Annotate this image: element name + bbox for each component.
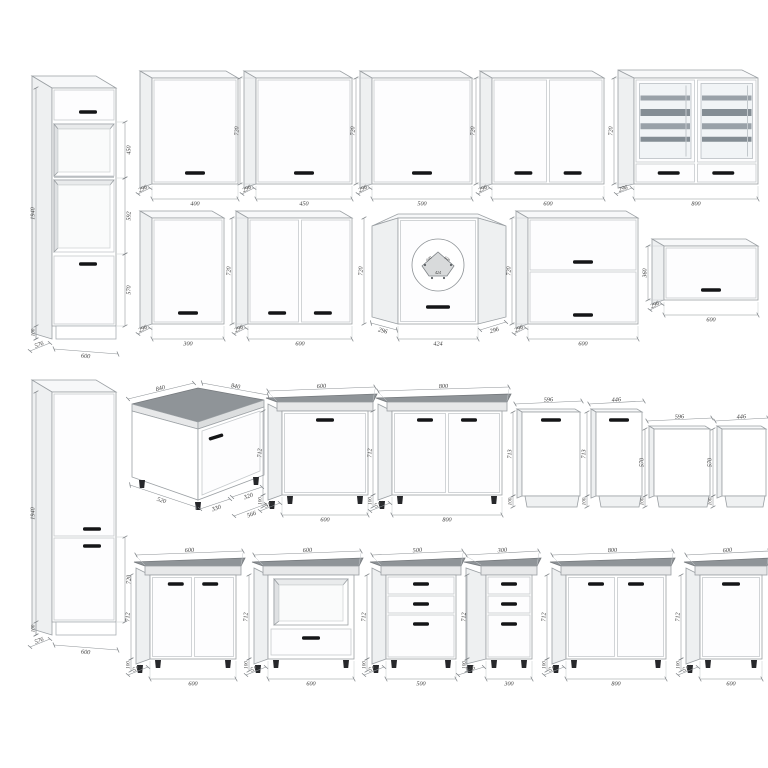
dim-label: 446	[737, 413, 748, 421]
side-face	[649, 426, 654, 498]
top-face	[618, 70, 758, 78]
dim-label: 400	[190, 200, 200, 207]
door-handle	[412, 171, 432, 174]
dim-label: 300	[182, 340, 193, 347]
plan-screw	[424, 264, 426, 266]
door-front	[250, 220, 299, 322]
door-handle	[701, 288, 721, 291]
dim-label: 100	[508, 497, 514, 505]
door-handle	[573, 260, 593, 263]
dim-label: 600	[295, 340, 305, 347]
dim-label: 720	[470, 125, 477, 135]
worktop-top	[550, 558, 675, 566]
dimension: 360	[642, 245, 651, 302]
door-handle	[79, 110, 97, 113]
leg	[705, 660, 711, 668]
glass-shelf-band	[641, 109, 691, 116]
dimension: 596	[646, 413, 714, 423]
door-front	[550, 80, 603, 182]
glass-shelf-band	[702, 137, 752, 142]
dim-label: 712	[541, 612, 548, 621]
dim-label: 300	[497, 547, 509, 555]
top-face	[717, 426, 766, 429]
leg	[253, 477, 259, 485]
dimension: 600	[663, 313, 760, 324]
dimension: 600	[253, 547, 363, 558]
dim-label: 712	[125, 612, 132, 621]
door-front	[285, 414, 366, 493]
drawing-base-drawer-cabinet-300: 300300712100546	[456, 547, 541, 688]
dimension: 446	[588, 396, 646, 406]
glass-shelf-band	[641, 137, 691, 142]
worktop-edge	[263, 566, 359, 575]
drawer-front	[271, 629, 351, 655]
leg	[521, 660, 527, 668]
leg	[287, 496, 293, 504]
worktop-top	[134, 558, 245, 566]
dimension: 500	[371, 197, 474, 208]
side-face	[517, 409, 522, 498]
glass-shelf-band	[702, 123, 752, 129]
drawing-wall-cabinet-800-glass: 800296720	[608, 70, 760, 207]
door-handle	[712, 171, 734, 174]
door-handle	[413, 602, 429, 605]
niche-top-shade	[54, 180, 114, 185]
door-handle	[413, 622, 429, 625]
front-face	[522, 412, 580, 496]
dimension: 712	[541, 574, 550, 661]
drawing-base-cabinet-800-2door: 800800712100516	[367, 383, 512, 524]
drawing-wall-cabinet-300: 300296	[136, 211, 225, 347]
dimension: 500	[371, 547, 465, 558]
dim-label: 800	[439, 383, 449, 390]
dim-label: 712	[243, 612, 250, 621]
dimension: 600	[491, 197, 606, 208]
dimension: 100	[582, 495, 590, 509]
door-front	[494, 80, 547, 182]
glass-pane	[640, 84, 692, 159]
dimension: 800	[633, 197, 760, 208]
top-face	[516, 211, 638, 218]
door-front	[258, 80, 350, 182]
dimension: 800	[565, 677, 668, 688]
dim-label: 100	[30, 624, 36, 632]
dim-label: 100	[30, 328, 36, 336]
dim-label: 712	[367, 448, 374, 457]
door-front	[54, 90, 114, 120]
worktop-edge	[145, 566, 241, 575]
drawing-appliance-panel-596: 596570100	[639, 413, 714, 508]
drawing-base-cabinet-600-2door: 600600712100516	[125, 547, 246, 688]
dim-label: 800	[611, 680, 621, 687]
dim-label: 720	[234, 125, 241, 135]
drawing-wall-cabinet-500: 500296720	[350, 71, 474, 207]
dim-label: 570	[639, 457, 646, 467]
dimension: 600	[247, 337, 354, 348]
front-face	[596, 412, 642, 496]
side-face	[466, 568, 486, 664]
dim-label: 720	[350, 125, 357, 135]
dim-label: 1940	[29, 206, 36, 219]
door-handle	[83, 527, 101, 530]
door-front	[395, 414, 446, 493]
catalog-drawing-mount: 1940100450592570576600400296450296720500…	[0, 0, 768, 768]
leg	[155, 660, 161, 668]
worktop-edge	[561, 566, 671, 575]
door-handle	[202, 582, 218, 585]
dim-label: 600	[317, 383, 327, 390]
door-handle	[294, 171, 314, 174]
panel-foot	[725, 496, 765, 507]
dimension: 600	[149, 677, 238, 688]
side-face	[378, 404, 392, 500]
leg	[655, 660, 661, 668]
dim-label: 500	[417, 200, 427, 207]
dimension: 600	[135, 547, 245, 558]
top-face	[480, 71, 604, 78]
door-front	[154, 80, 236, 182]
dimension: 600	[281, 513, 370, 524]
side-face	[717, 426, 722, 498]
dim-label: 840	[155, 384, 167, 393]
drawing-dishwasher-front-596: 596713100	[507, 396, 584, 508]
dim-label: 600	[306, 680, 316, 687]
plinth	[56, 326, 116, 339]
door-front	[703, 578, 760, 657]
dim-label: 712	[361, 612, 368, 621]
drawing-base-drawer-cabinet-500: 500500712100516	[361, 547, 466, 688]
dim-label: 600	[706, 316, 716, 323]
leg	[139, 480, 145, 488]
door-handle	[588, 582, 604, 585]
top-face	[360, 71, 472, 78]
dimension: 600	[267, 677, 356, 688]
dim-label: 446	[612, 396, 623, 404]
side-face	[140, 211, 152, 328]
worktop-edge	[381, 566, 461, 575]
door-handle	[268, 311, 286, 314]
dim-label: 1940	[29, 506, 36, 519]
glass-shelf-band	[641, 96, 691, 101]
door-handle	[564, 171, 582, 174]
drawing-wall-cabinet-400: 400296	[136, 71, 239, 207]
drawer-front	[388, 615, 454, 657]
niche-side-shade	[274, 579, 279, 625]
dim-label: 600	[81, 649, 92, 657]
niche-back	[58, 129, 110, 172]
side-face	[360, 71, 372, 188]
dimension: 330	[198, 497, 232, 513]
niche-top-shade	[274, 579, 348, 585]
dim-label: 570	[125, 284, 132, 294]
glass-shelf-band	[702, 109, 752, 116]
dimension: 300	[465, 547, 541, 558]
door-handle	[501, 582, 517, 585]
dim-label: 800	[608, 547, 618, 554]
dim-label: 576	[34, 636, 46, 646]
door-front	[153, 578, 192, 657]
side-face	[480, 71, 492, 188]
dimension: 300	[151, 337, 226, 348]
dimension: 600	[699, 677, 764, 688]
door-handle	[514, 171, 532, 174]
dimension: 712	[361, 574, 370, 661]
niche-top-shade	[54, 124, 114, 129]
top-face	[652, 239, 758, 246]
top-face	[140, 211, 224, 218]
leg	[751, 660, 757, 668]
leg	[391, 660, 397, 668]
dim-label: 500	[416, 680, 426, 687]
worktop-edge	[695, 566, 767, 575]
leg	[273, 660, 279, 668]
dimension: 450	[255, 197, 354, 208]
dimension: 600	[685, 547, 768, 558]
dim-label: 600	[320, 516, 330, 523]
top-face	[236, 211, 352, 218]
side-face	[618, 70, 634, 188]
worktop-top	[266, 394, 377, 402]
drawing-tall-oven-housing-600: 1940100450592570576600	[28, 76, 132, 360]
dimension: 800	[551, 547, 675, 558]
plan-screw	[443, 277, 445, 279]
front-face	[654, 429, 710, 496]
door-handle	[426, 305, 450, 308]
top-face	[649, 426, 710, 429]
door-front	[195, 578, 234, 657]
side-face	[254, 568, 268, 664]
catalog-page: 1940100450592570576600400296450296720500…	[0, 0, 768, 768]
drawing-wall-corner-cabinet-424: 600600424720296424296	[358, 214, 508, 347]
door-handle	[541, 418, 561, 421]
niche-back	[58, 185, 110, 248]
drawing-wall-cabinet-600-2door: 600296720	[470, 71, 606, 207]
drawing-tall-fridge-housing-600: 1940100720576600	[28, 380, 132, 656]
dim-label: 600	[543, 200, 553, 207]
door-handle	[417, 418, 433, 421]
side-face	[372, 568, 386, 664]
worktop-edge	[387, 402, 507, 411]
plan-label: 424	[435, 270, 441, 275]
door-handle	[178, 311, 198, 314]
drawing-wall-cabinet-600-flap1: 600296360	[642, 239, 760, 323]
dim-label: 500	[413, 547, 423, 554]
panel-foot	[599, 496, 641, 507]
plan-screw	[431, 277, 433, 279]
dim-label: 596	[544, 396, 554, 403]
dimension: 600	[53, 347, 119, 361]
door-handle	[501, 602, 517, 605]
door-handle	[461, 418, 477, 421]
dim-label: 570	[707, 457, 714, 467]
dimension: 576	[28, 340, 52, 353]
niche-back	[279, 585, 343, 621]
left-side-face	[372, 218, 398, 324]
dimension: 296	[614, 184, 634, 196]
dim-label: 600	[303, 547, 313, 554]
top-face	[140, 71, 238, 78]
leg	[397, 496, 403, 504]
dim-label: 800	[691, 200, 701, 207]
side-face	[244, 71, 256, 188]
dimension: 592	[123, 177, 133, 256]
side-face	[236, 211, 248, 328]
dimension: 720	[226, 217, 235, 326]
leg	[491, 660, 497, 668]
top-face	[517, 409, 580, 412]
worktop-top	[370, 558, 465, 566]
dimension: 300	[485, 677, 534, 688]
worktop-top	[684, 558, 768, 566]
dimension: 800	[377, 383, 511, 394]
dimension: 424	[397, 337, 480, 348]
dim-label: 600	[578, 340, 588, 347]
catalog-drawing: 1940100450592570576600400296450296720500…	[0, 0, 768, 768]
dim-label: 424	[433, 340, 442, 347]
door-handle	[573, 313, 593, 316]
drawing-dishwasher-front-446: 446713100	[581, 396, 646, 508]
door-front	[374, 80, 470, 182]
dimension: 600	[53, 643, 119, 657]
side-face	[136, 568, 150, 664]
dimension: 713	[581, 411, 590, 498]
side-face	[591, 409, 596, 498]
dim-label: 600	[726, 680, 736, 687]
dimension: 596	[514, 396, 584, 406]
door-handle	[302, 636, 320, 639]
front-face	[722, 429, 766, 496]
dimension: 720	[358, 217, 367, 326]
dim-label: 546	[465, 664, 477, 674]
door-handle	[722, 582, 740, 585]
door-front	[569, 578, 615, 657]
leg	[491, 496, 497, 504]
glass-shelf-band	[641, 123, 691, 129]
leg	[445, 660, 451, 668]
top-face	[244, 71, 352, 78]
door-front	[154, 220, 222, 322]
dim-label: 450	[299, 200, 309, 207]
door-front	[54, 256, 114, 324]
dimension: 500	[385, 677, 458, 688]
dimension: 400	[151, 197, 240, 208]
door-handle	[413, 582, 429, 585]
side-face	[552, 568, 566, 664]
dim-label: 520	[156, 496, 168, 506]
dim-label: 713	[581, 449, 588, 458]
drawing-wall-cabinet-600-flap2: 600296720	[506, 211, 640, 347]
drawing-base-oven-housing-600: 600600712100516	[243, 547, 364, 688]
drawing-wall-cabinet-600-2door-b: 600296720	[226, 211, 354, 347]
dim-label: 713	[507, 449, 514, 458]
dim-label: 100	[708, 497, 714, 505]
dim-label: 296	[377, 326, 389, 335]
dim-label: 720	[226, 265, 233, 275]
dimension: 720	[608, 77, 617, 186]
dimension: 720	[506, 217, 515, 326]
dim-label: 296	[489, 326, 501, 336]
worktop-top	[252, 558, 363, 566]
drawing-wall-cabinet-450: 450296720	[234, 71, 354, 207]
dimension: 712	[243, 574, 252, 661]
panel-foot	[525, 496, 579, 507]
dim-label: 600	[185, 547, 195, 554]
worktop-edge	[481, 566, 537, 575]
door-handle	[185, 171, 205, 174]
dimension: 100	[508, 495, 516, 509]
side-face	[268, 404, 282, 500]
dim-label: 300	[503, 680, 514, 687]
dimension: 712	[675, 574, 684, 661]
leg	[225, 660, 231, 668]
door-front	[54, 538, 114, 620]
panel-foot	[657, 496, 709, 507]
top-face	[591, 409, 642, 412]
dimension: 712	[125, 574, 134, 661]
door-handle	[316, 418, 334, 421]
door-handle	[314, 311, 332, 314]
worktop-edge	[277, 402, 373, 411]
dim-label: 712	[461, 612, 468, 621]
glass-shelf-band	[702, 96, 752, 101]
door-front	[449, 414, 500, 493]
drawing-base-cabinet-600-1door-b: 600600712100516	[675, 547, 768, 688]
leg	[343, 660, 349, 668]
side-face	[140, 71, 152, 188]
dim-label: 600	[723, 547, 734, 554]
door-handle	[628, 582, 644, 585]
door-front	[302, 220, 351, 322]
dim-label: 360	[642, 267, 649, 278]
worktop-top	[376, 394, 511, 402]
door-handle	[501, 622, 517, 625]
drawing-base-cabinet-600-1door: 600600712100516	[257, 383, 378, 524]
leg	[357, 496, 363, 504]
dim-label: 720	[125, 574, 132, 584]
door-front	[54, 394, 114, 536]
plan-screw	[450, 264, 452, 266]
drawer-front	[488, 615, 530, 657]
drawing-base-cabinet-800-2door-b: 800800712100516	[541, 547, 676, 688]
niche-side-shade	[54, 180, 58, 252]
dim-label: 596	[675, 413, 685, 420]
dimension: 800	[391, 513, 504, 524]
side-face	[652, 239, 664, 304]
dim-label: 100	[640, 497, 646, 505]
dim-label: 720	[608, 125, 615, 135]
dim-label: 800	[442, 516, 452, 523]
dim-label: 720	[506, 265, 513, 275]
dim-label: 712	[257, 448, 264, 457]
glass-pane	[701, 84, 753, 159]
dimension: 570	[123, 253, 133, 328]
dimension: 600	[267, 383, 377, 394]
door-handle	[168, 582, 184, 585]
door-front	[618, 578, 664, 657]
dimension: 450	[123, 121, 133, 180]
door-handle	[609, 418, 629, 421]
niche-side-shade	[54, 124, 58, 176]
dimension: 446	[714, 413, 768, 423]
dim-label: 592	[125, 211, 132, 220]
right-side-face	[478, 218, 506, 324]
plinth	[56, 622, 116, 635]
drawing-base-corner-cabinet-840: 840840520330320566	[126, 380, 269, 519]
door-handle	[83, 544, 101, 547]
dim-label: 450	[125, 144, 132, 154]
drawing-appliance-panel-446: 446570100	[707, 413, 768, 508]
dimension: 713	[507, 411, 516, 498]
